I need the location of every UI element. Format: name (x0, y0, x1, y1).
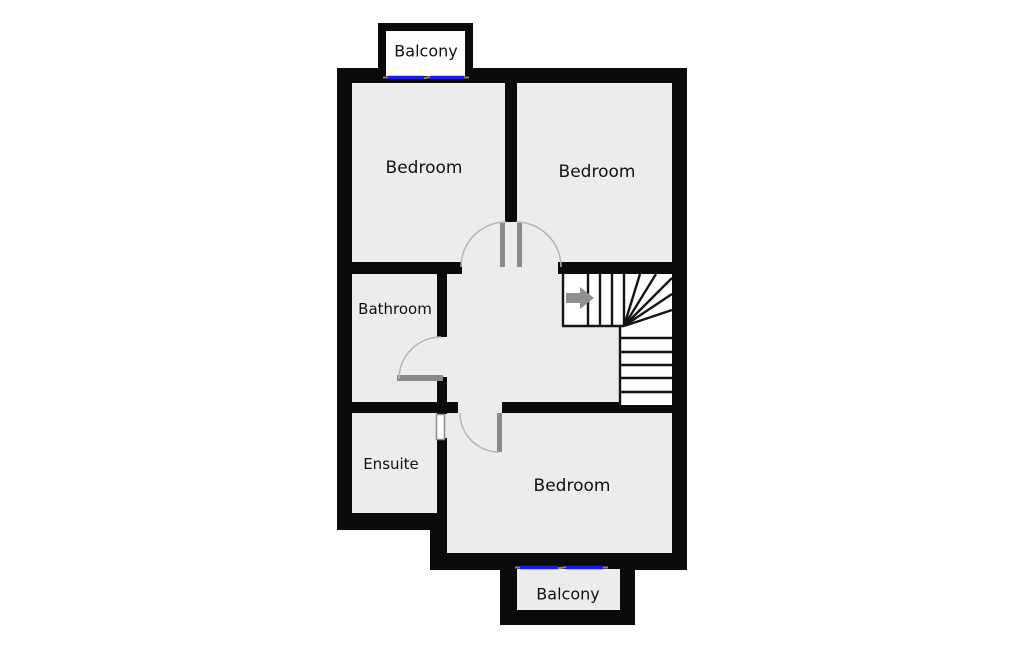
room-label-bathroom: Bathroom (358, 300, 432, 318)
room-label-bedroom-bottom: Bedroom (534, 476, 611, 496)
wall-bedroom-divider (505, 83, 517, 222)
floor-bedroom-bottom-extension (447, 513, 672, 553)
floorplan-canvas: Balcony Bedroom Bedroom Bathroom Ensuite… (0, 0, 1024, 652)
room-label-ensuite: Ensuite (363, 455, 419, 473)
door-leaf-ensuite (437, 415, 445, 440)
wall-bathroom-top (337, 262, 462, 274)
door-leaf-bathroom (397, 375, 443, 381)
wall-stairs-top (558, 262, 687, 274)
wall-ensuite-right-lower (437, 438, 447, 514)
wall-bathroom-right-upper (437, 274, 447, 337)
room-label-balcony-top: Balcony (394, 42, 457, 61)
door-leaf-bedroom-top-left (500, 223, 505, 267)
room-label-bedroom-top-right: Bedroom (559, 162, 636, 182)
room-label-bedroom-top-left: Bedroom (386, 158, 463, 178)
room-label-balcony-bottom: Balcony (536, 585, 599, 604)
door-leaf-bedroom-bottom (497, 413, 502, 452)
door-leaf-bedroom-top-right (517, 223, 522, 267)
wall-ensuite-top (337, 402, 458, 413)
floorplan-drawing (0, 0, 1024, 652)
